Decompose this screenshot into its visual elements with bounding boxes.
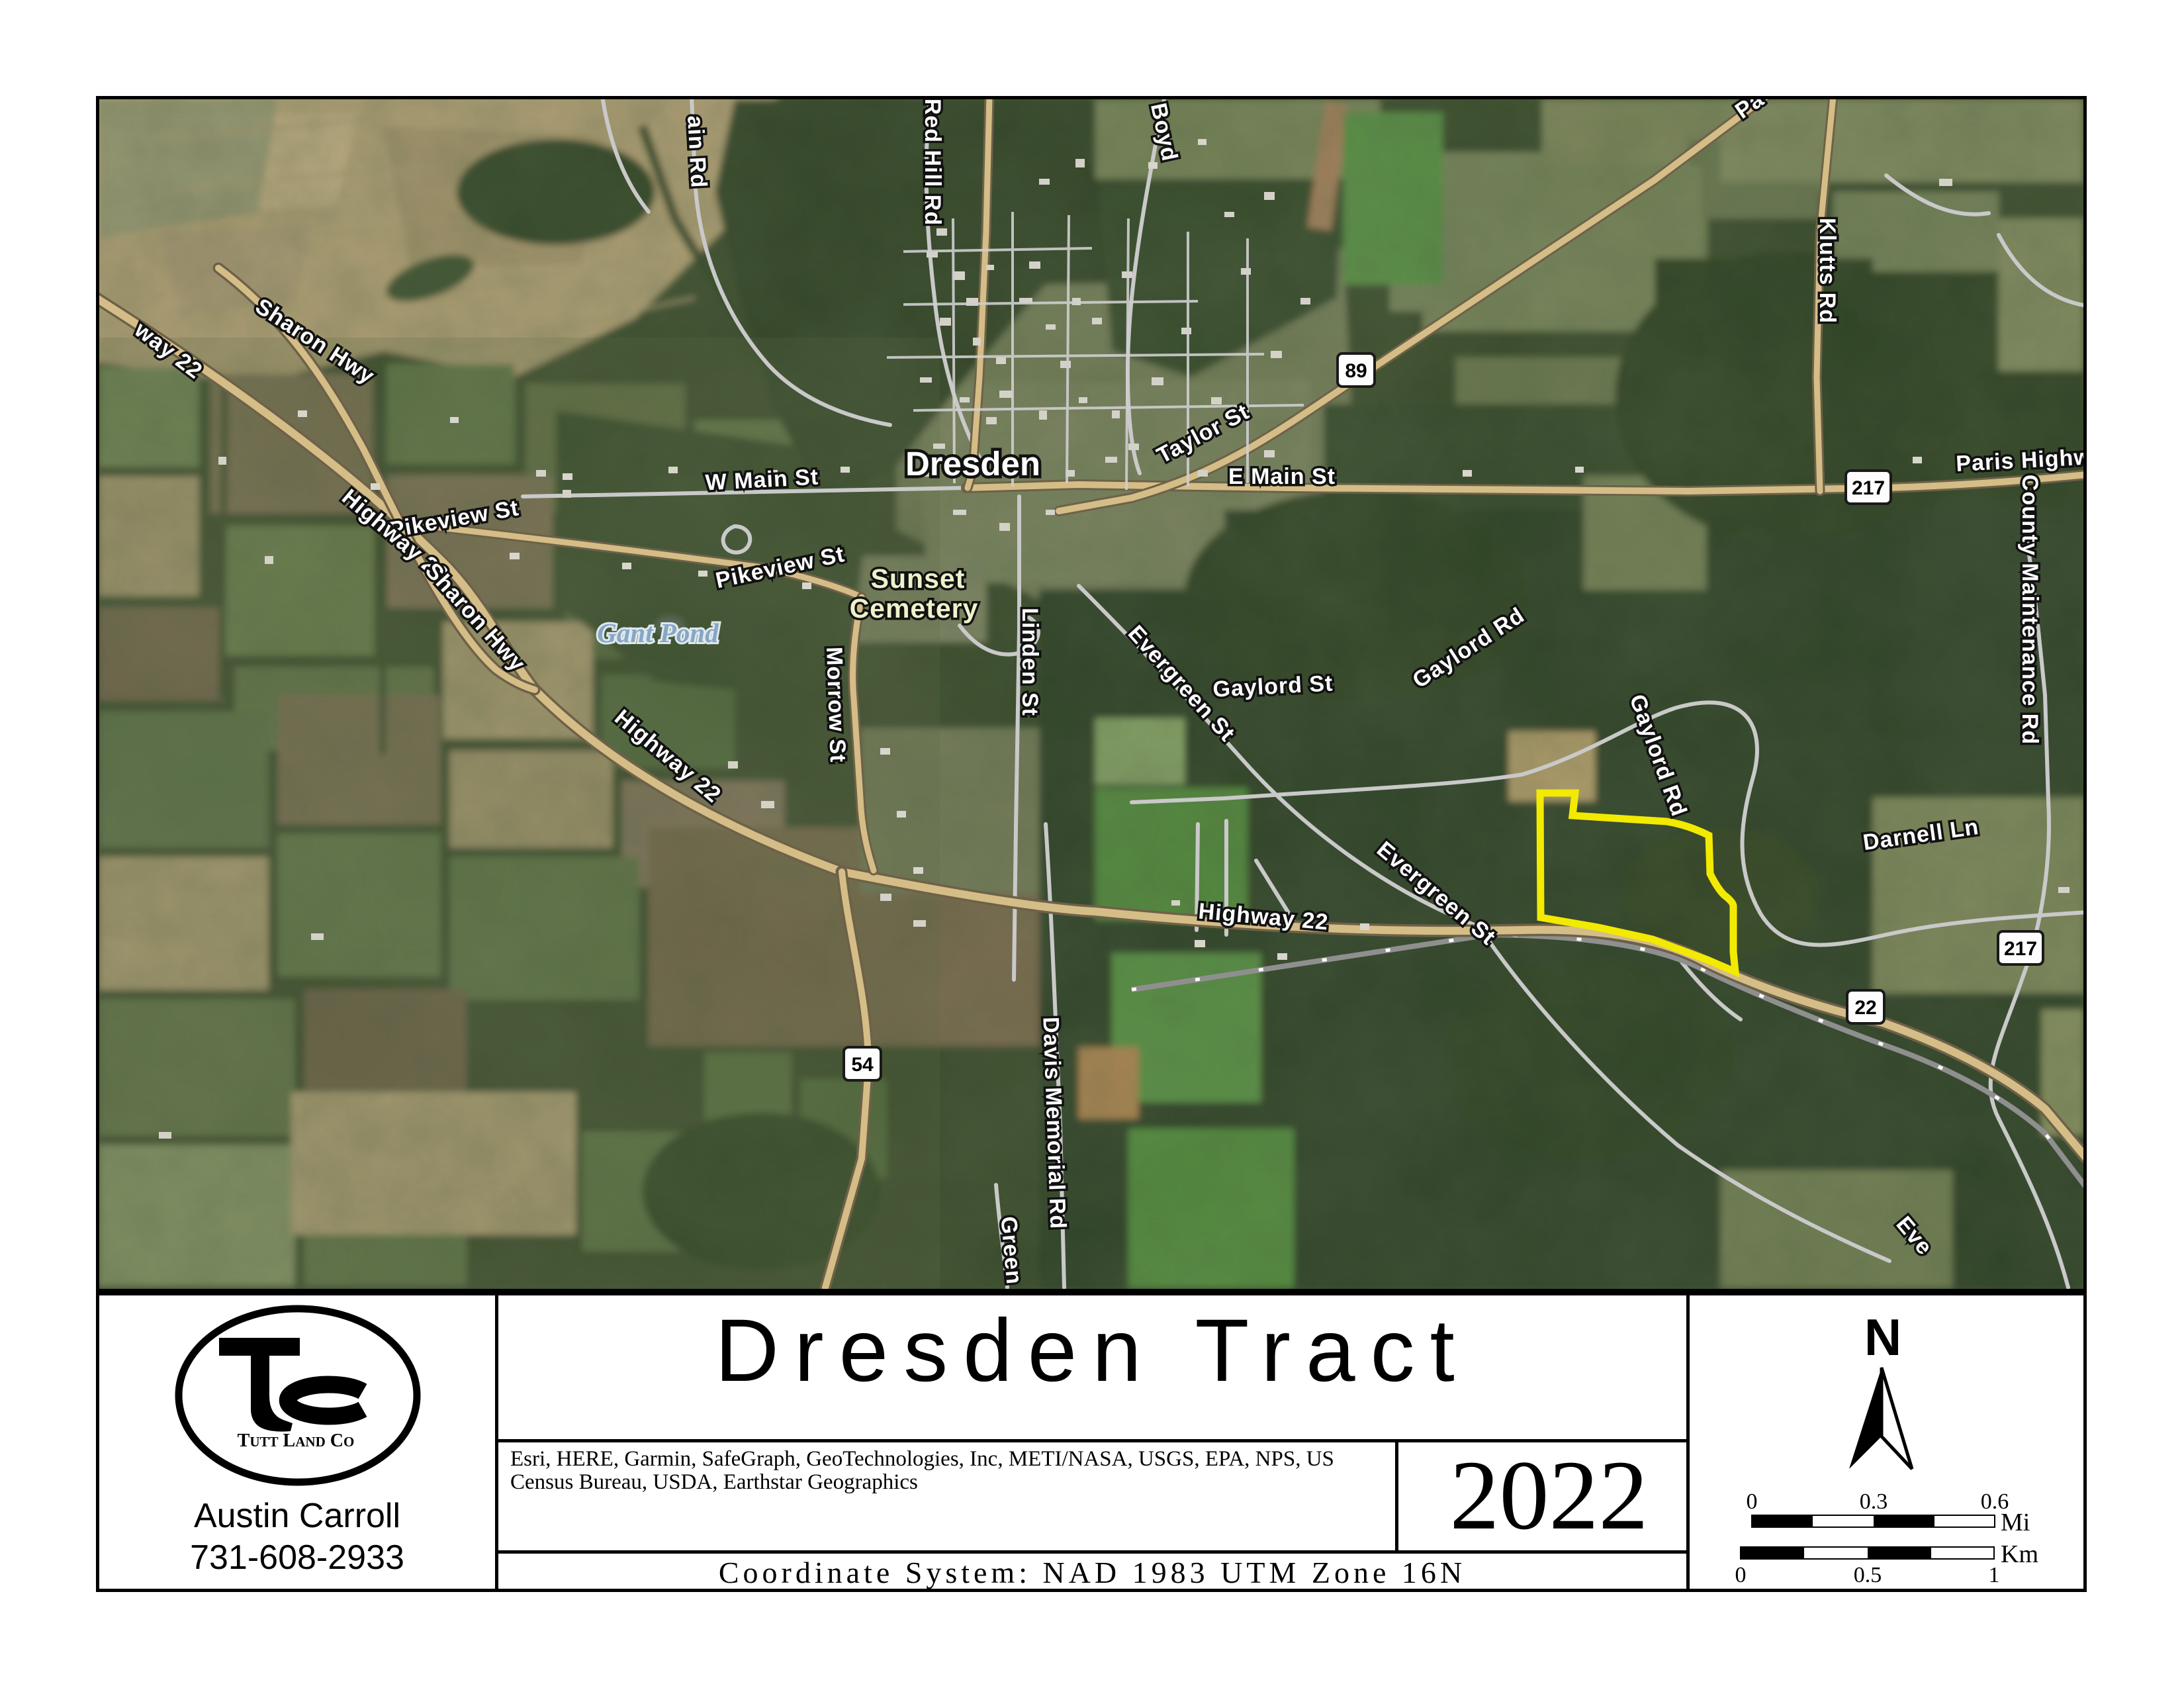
svg-text:Morrow St: Morrow St	[821, 646, 850, 763]
svg-text:0.5: 0.5	[1854, 1563, 1882, 1587]
svg-text:217: 217	[2004, 938, 2037, 960]
svg-text:54: 54	[851, 1054, 874, 1076]
svg-text:ain Rd: ain Rd	[682, 115, 711, 189]
svg-text:Km: Km	[2001, 1540, 2038, 1568]
svg-text:0.3: 0.3	[1860, 1489, 1888, 1514]
svg-text:TUTT LAND CO: TUTT LAND CO	[238, 1430, 355, 1451]
svg-text:E Main St: E Main St	[1228, 464, 1336, 489]
svg-text:Sunset: Sunset	[871, 563, 966, 594]
svg-text:89: 89	[1345, 360, 1367, 382]
svg-text:Gant Pond: Gant Pond	[597, 618, 719, 648]
svg-text:217: 217	[1852, 477, 1885, 499]
svg-text:Mi: Mi	[2001, 1509, 2030, 1536]
svg-text:Linden St: Linden St	[1017, 608, 1042, 716]
svg-text:0: 0	[1747, 1489, 1758, 1514]
svg-text:N: N	[1864, 1308, 1901, 1366]
svg-text:Red Hill Rd: Red Hill Rd	[920, 99, 945, 226]
svg-text:1: 1	[1989, 1563, 2000, 1587]
svg-text:Klutts Rd: Klutts Rd	[1815, 218, 1840, 324]
svg-text:Dresden: Dresden	[905, 445, 1040, 483]
svg-text:0: 0	[1735, 1563, 1747, 1587]
svg-text:22: 22	[1854, 997, 1876, 1019]
svg-text:Cemetery: Cemetery	[850, 593, 979, 624]
svg-text:County Maintenance Rd: County Maintenance Rd	[2017, 475, 2042, 745]
